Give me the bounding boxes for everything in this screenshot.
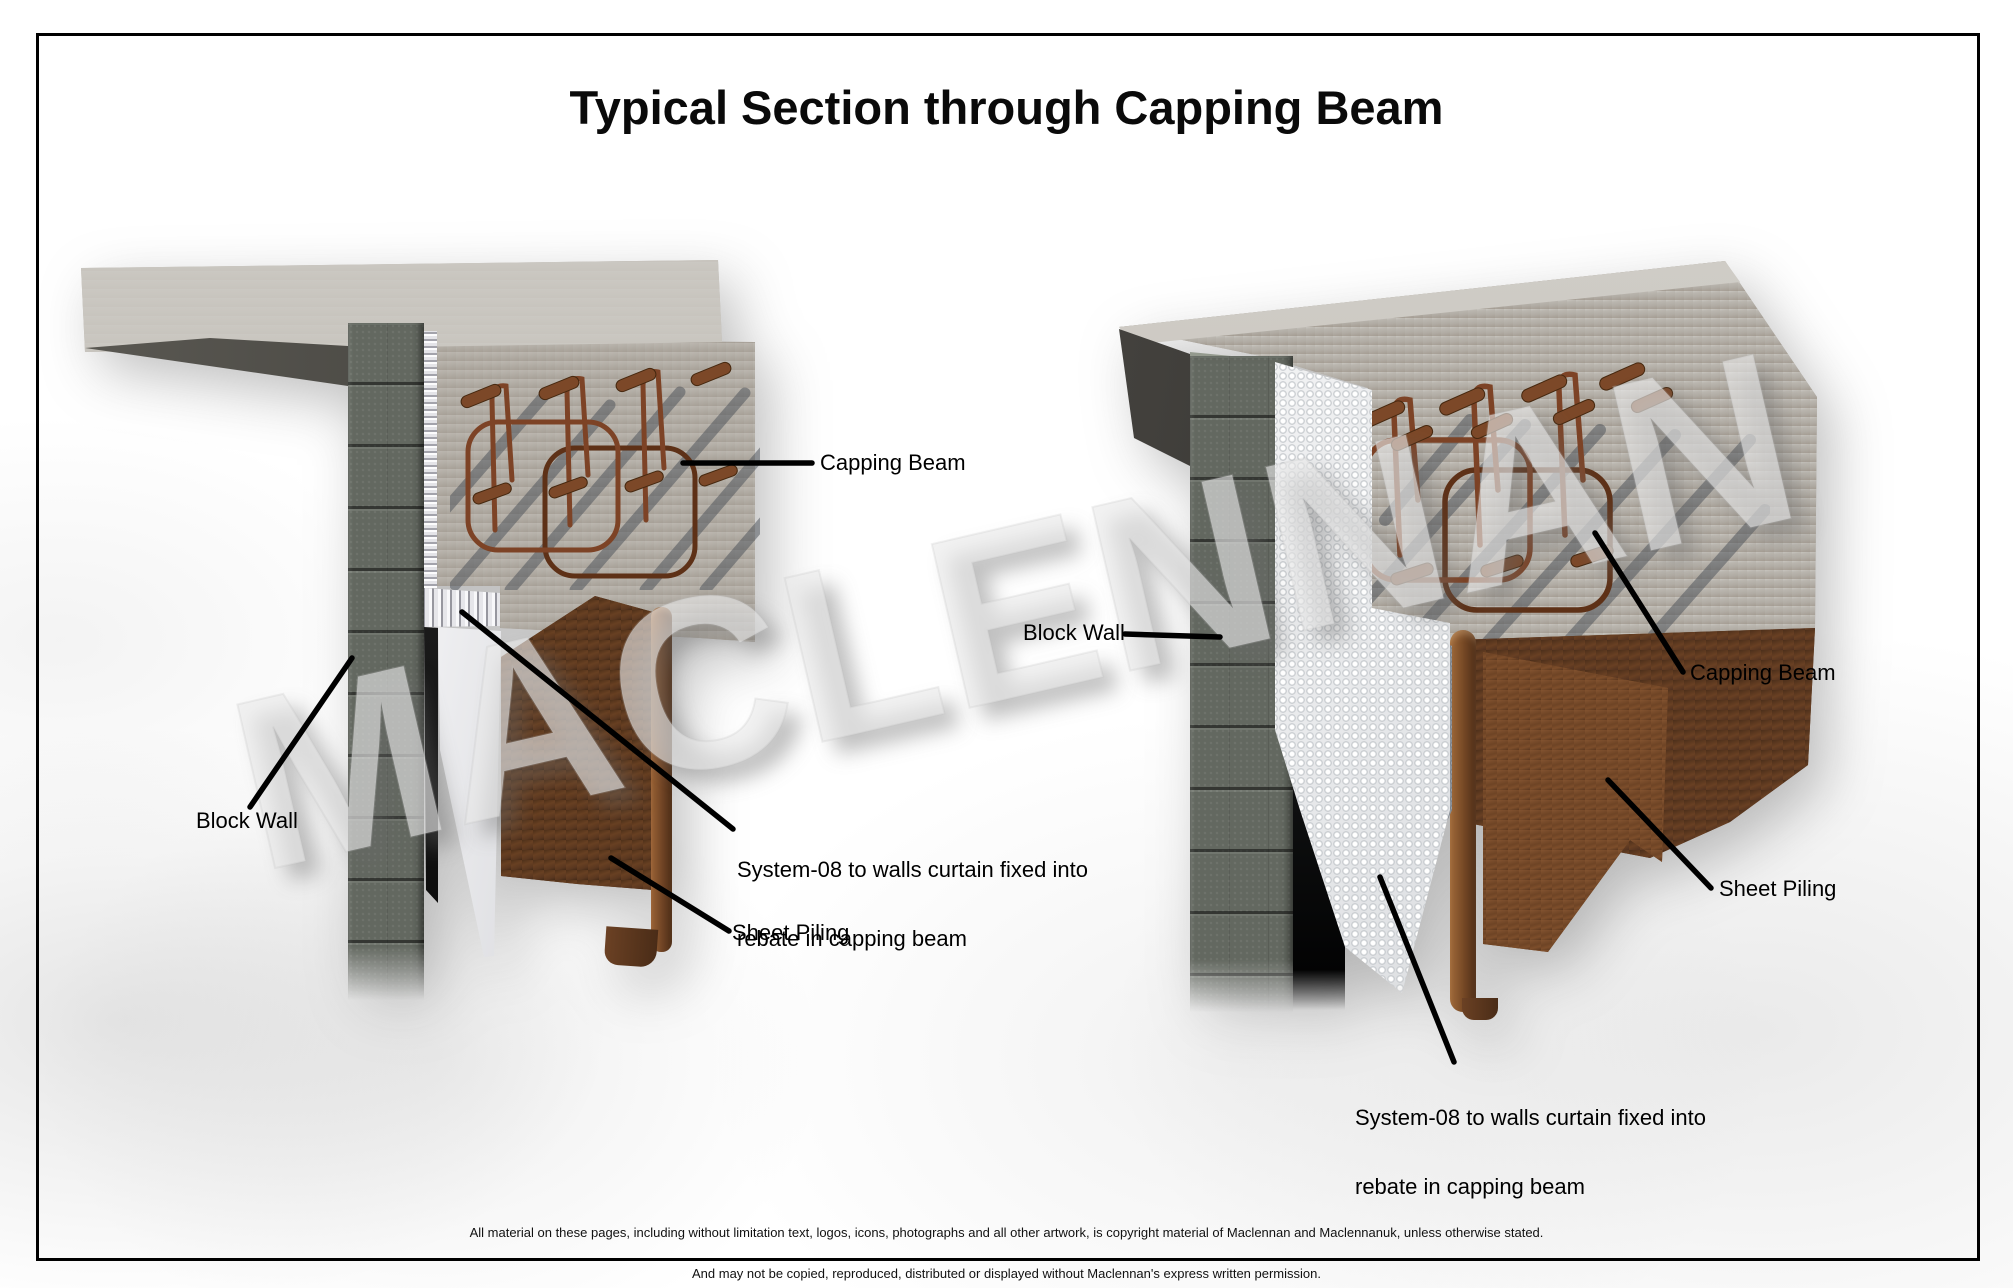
sheet-pile-foot-left [604, 926, 659, 968]
label-text: Capping Beam [820, 450, 966, 475]
label-capping-beam-left: Capping Beam [820, 451, 966, 474]
left-section-diagram [60, 190, 770, 980]
rebar-cage-right-icon [1330, 340, 1770, 650]
footer-line1: All material on these pages, including w… [36, 1226, 1977, 1240]
label-text: Sheet Piling [1719, 876, 1836, 901]
label-text: Block Wall [196, 808, 298, 833]
block-wall-left [348, 323, 424, 1000]
sheet-pile-clutch-right [1450, 630, 1476, 1012]
label-text: Block Wall [1023, 620, 1125, 645]
label-text: Sheet Piling [732, 920, 849, 945]
label-text: Capping Beam [1690, 660, 1836, 685]
sheet-pile-foot-right [1462, 998, 1498, 1020]
copyright-footer: All material on these pages, including w… [36, 1199, 1977, 1288]
label-block-wall-left: Block Wall [196, 809, 298, 832]
label-sheet-piling-left: Sheet Piling [732, 921, 849, 944]
label-sheet-piling-right: Sheet Piling [1719, 877, 1836, 900]
corrugated-strip-vertical-left [424, 331, 437, 588]
page-title: Typical Section through Capping Beam [36, 80, 1977, 135]
label-capping-beam-right: Capping Beam [1690, 661, 1836, 684]
label-line1: System-08 to walls curtain fixed into [737, 858, 1088, 881]
label-line1: System-08 to walls curtain fixed into [1355, 1106, 1706, 1129]
label-line2: rebate in capping beam [1355, 1175, 1706, 1198]
rebar-cage-left-icon [450, 360, 760, 590]
label-block-wall-right: Block Wall [1023, 621, 1125, 644]
footer-line2: And may not be copied, reproduced, distr… [36, 1267, 1977, 1281]
label-system08-left: System-08 to walls curtain fixed into re… [737, 812, 1088, 996]
sheet-pile-clutch-left [651, 607, 672, 952]
page-canvas: Typical Section through Capping Beam [0, 0, 2013, 1288]
